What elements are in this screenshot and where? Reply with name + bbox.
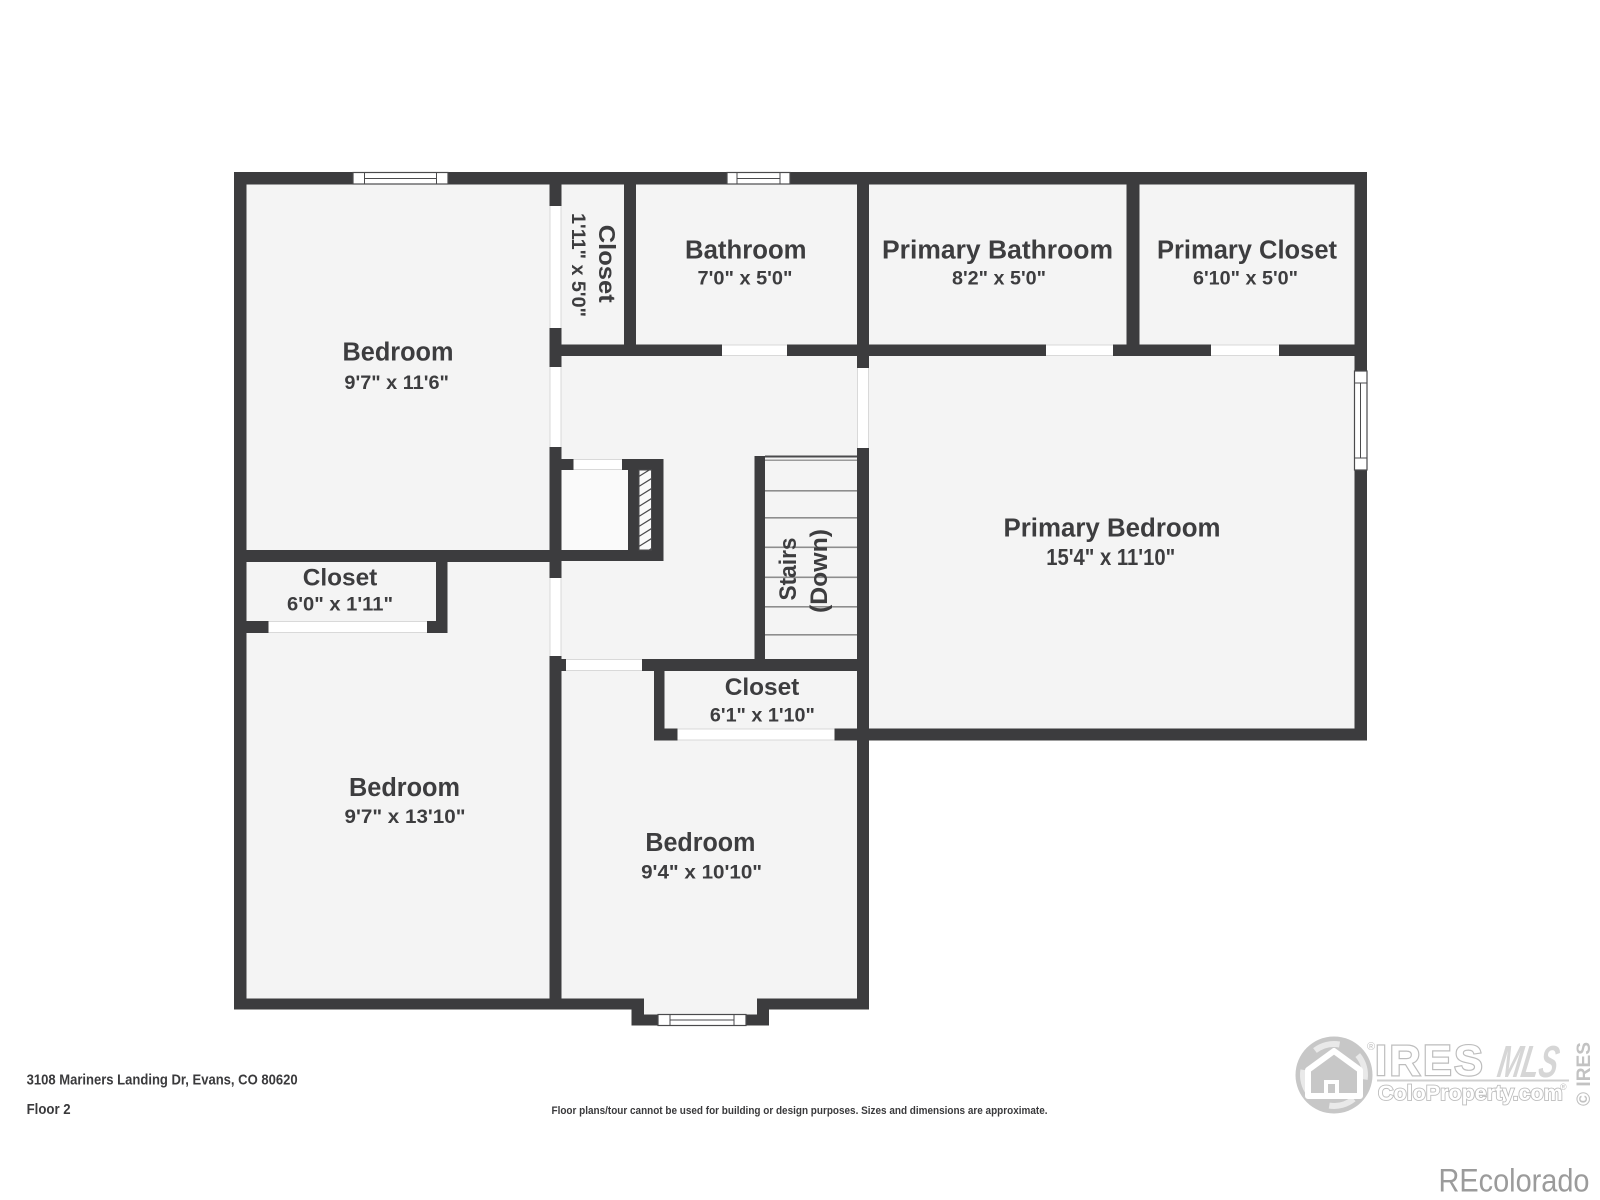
- svg-text:7'0" x 5'0": 7'0" x 5'0": [698, 269, 793, 290]
- svg-text:Primary Bedroom: Primary Bedroom: [1004, 515, 1221, 543]
- svg-text:6'1" x 1'10": 6'1" x 1'10": [710, 706, 815, 727]
- svg-text:Stairs: Stairs: [775, 538, 802, 601]
- svg-text:Primary Closet: Primary Closet: [1157, 237, 1338, 265]
- svg-text:Closet: Closet: [594, 225, 620, 303]
- svg-text:Bathroom: Bathroom: [685, 237, 807, 265]
- svg-text:Closet: Closet: [725, 674, 800, 701]
- svg-text:®: ®: [1367, 1041, 1375, 1053]
- svg-text:Floor plans/tour cannot be use: Floor plans/tour cannot be used for buil…: [552, 1105, 1048, 1117]
- svg-text:®: ®: [1560, 1082, 1567, 1092]
- svg-text:MLS: MLS: [1494, 1036, 1563, 1087]
- svg-text:REcolorado: REcolorado: [1439, 1163, 1590, 1199]
- svg-text:9'7" x 11'6": 9'7" x 11'6": [344, 373, 449, 394]
- svg-text:ColoProperty.com: ColoProperty.com: [1378, 1081, 1563, 1105]
- svg-text:1'11" x 5'0": 1'11" x 5'0": [567, 213, 588, 317]
- svg-text:9'4" x 10'10": 9'4" x 10'10": [641, 863, 762, 884]
- svg-text:8'2" x 5'0": 8'2" x 5'0": [952, 269, 1046, 290]
- svg-text:Bedroom: Bedroom: [349, 774, 460, 802]
- svg-text:Bedroom: Bedroom: [343, 339, 454, 367]
- svg-text:9'7" x 13'10": 9'7" x 13'10": [345, 807, 466, 828]
- svg-text:6'0" x 1'11": 6'0" x 1'11": [287, 595, 393, 616]
- svg-text:Primary Bathroom: Primary Bathroom: [882, 237, 1113, 265]
- svg-text:15'4" x 11'10": 15'4" x 11'10": [1046, 544, 1175, 570]
- svg-text:IRES: IRES: [1375, 1037, 1485, 1085]
- svg-text:Bedroom: Bedroom: [645, 829, 755, 857]
- svg-text:6'10" x 5'0": 6'10" x 5'0": [1193, 269, 1298, 290]
- svg-text:© IRES: © IRES: [1574, 1042, 1595, 1106]
- svg-text:Floor 2: Floor 2: [27, 1101, 71, 1118]
- svg-text:(Down): (Down): [806, 529, 833, 613]
- svg-text:Closet: Closet: [303, 565, 378, 592]
- svg-text:3108 Mariners Landing Dr, Evan: 3108 Mariners Landing Dr, Evans, CO 8062…: [27, 1072, 298, 1089]
